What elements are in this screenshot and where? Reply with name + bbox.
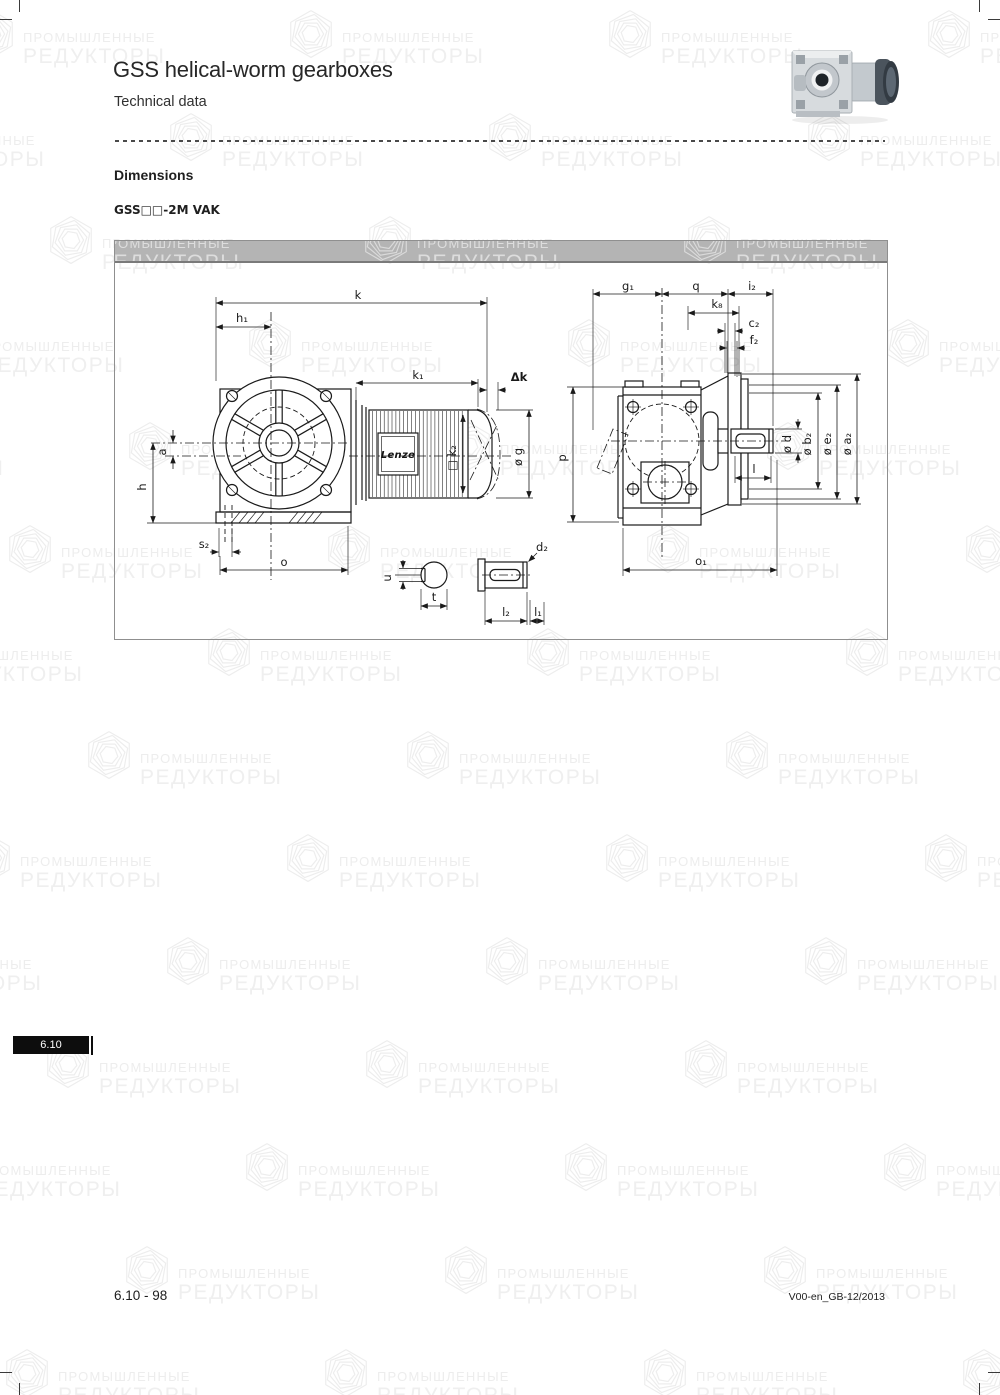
dim-label-l1: l₁ [534, 605, 542, 619]
dim-label-k: k [355, 288, 362, 302]
dim-label-u: u [380, 574, 394, 581]
dim-label-i2: i₂ [748, 279, 756, 293]
product-photo [782, 45, 908, 127]
watermark-logo-icon [678, 241, 732, 263]
dim-label-g1: g₁ [622, 279, 634, 293]
dim-label-g: ø g [511, 448, 525, 466]
watermark-line1: ПРОМЫШЛЕННЫЕ [115, 241, 240, 251]
footer-document-reference: V00-en_GB-12/2013 [680, 1291, 885, 1303]
dim-label-o: o [280, 555, 287, 569]
dim-label-k2: □ k₂ [445, 445, 459, 471]
dim-label-l: l [752, 462, 755, 476]
page-title: GSS helical-worm gearboxes [113, 57, 393, 83]
crop-mark [979, 0, 980, 12]
housing-base [216, 512, 351, 523]
dim-label-d2: d₂ [536, 540, 548, 554]
dim-label-f2: f₂ [750, 333, 759, 347]
panel-header-bar: ПРОМЫШЛЕННЫЕРЕДУКТОРЫПРОМЫШЛЕННЫЕРЕДУКТО… [115, 241, 887, 263]
page-subtitle: Technical data [114, 94, 207, 110]
crop-mark [0, 1372, 12, 1373]
dim-label-t: t [432, 590, 437, 604]
crop-mark [988, 19, 1000, 20]
crop-mark [979, 1383, 980, 1395]
front-view: Lenze k h₁ [135, 288, 533, 580]
dim-label-h1: h₁ [236, 311, 248, 325]
dim-label-dk: Δk [511, 370, 528, 384]
watermark-line2: РЕДУКТОРЫ [417, 251, 559, 263]
crop-mark [0, 19, 12, 20]
variant-label: GSS□□-2M VAK [114, 203, 220, 217]
dim-label-b2: ø b₂ [800, 433, 814, 456]
section-tab: 6.10 [13, 1036, 89, 1054]
crop-mark [19, 1383, 20, 1395]
dim-label-a2: ø a₂ [840, 433, 854, 455]
watermark: ПРОМЫШЛЕННЫЕРЕДУКТОРЫ [359, 241, 579, 263]
watermark-line1: ПРОМЫШЛЕННЫЕ [417, 241, 559, 251]
section-heading: Dimensions [114, 167, 193, 183]
watermark-line2: РЕДУКТОРЫ [115, 251, 240, 263]
dimensions-panel: ПРОМЫШЛЕННЫЕРЕДУКТОРЫПРОМЫШЛЕННЫЕРЕДУКТО… [114, 240, 888, 640]
brand-label: Lenze [381, 450, 415, 461]
dim-label-s2: s₂ [199, 537, 210, 551]
watermark-line1: ПРОМЫШЛЕННЫЕ [736, 241, 878, 251]
watermark: ПРОМЫШЛЕННЫЕРЕДУКТОРЫ [115, 241, 260, 263]
dim-label-k8: k₈ [711, 297, 723, 311]
watermark-line2: РЕДУКТОРЫ [736, 251, 878, 263]
side-view: g₁ q i₂ k₈ c₂ f₂ [555, 279, 861, 576]
dim-label-l2: l₂ [502, 605, 510, 619]
shaft-detail: u t d₂ [380, 540, 548, 625]
watermark: ПРОМЫШЛЕННЫЕРЕДУКТОРЫ [678, 241, 887, 263]
dim-label-a: a [155, 448, 169, 455]
dim-label-h: h [135, 483, 149, 490]
dim-label-q: q [692, 279, 699, 293]
fan-cover [468, 410, 492, 498]
dim-label-c2: c₂ [749, 316, 760, 330]
crop-mark [988, 1372, 1000, 1373]
footer-page-number: 6.10 - 98 [114, 1288, 167, 1303]
catalog-page: ПРОМЫШЛЕННЫЕРЕДУКТОРЫПРОМЫШЛЕННЫЕРЕДУКТО… [0, 0, 1000, 1395]
section-tab-edge [91, 1036, 93, 1055]
crop-mark [19, 0, 20, 12]
dim-label-o1: o₁ [695, 554, 707, 568]
watermark-logo-icon [359, 241, 413, 263]
dim-label-e2: ø e₂ [820, 433, 834, 455]
dim-label-k1: k₁ [412, 368, 423, 382]
dashed-divider [115, 140, 885, 142]
feet-hatch [231, 512, 322, 523]
dim-label-p: p [555, 454, 569, 461]
dimension-drawing: Lenze k h₁ [116, 263, 886, 638]
dim-label-d: ø d [780, 435, 794, 453]
